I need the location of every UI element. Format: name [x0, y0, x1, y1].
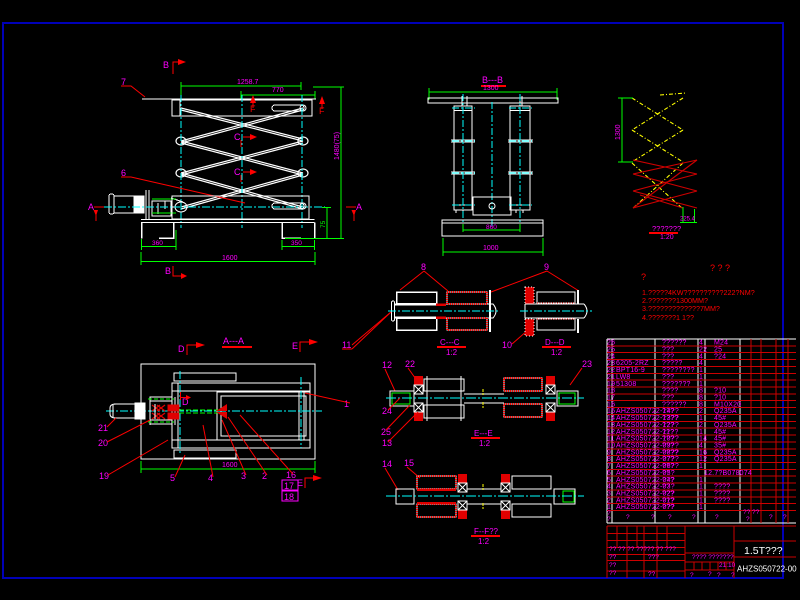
svg-text:5: 5 [170, 473, 175, 483]
svg-text:E---E: E---E [474, 429, 493, 438]
svg-text:75: 75 [320, 220, 327, 228]
svg-text:1: 1 [699, 504, 703, 511]
svg-text:360: 360 [152, 240, 163, 247]
svg-text:C: C [234, 167, 241, 177]
svg-text:??: ?? [609, 554, 617, 561]
svg-text:A: A [356, 202, 362, 212]
svg-text:18: 18 [284, 492, 294, 502]
svg-text:10: 10 [502, 340, 512, 350]
svg-text:1: 1 [699, 463, 703, 470]
svg-text:?: ? [746, 516, 750, 523]
svg-text:20: 20 [98, 438, 108, 448]
svg-text:1:20: 1:20 [660, 234, 674, 241]
svg-text:1: 1 [344, 399, 349, 409]
svg-text:????: ???? [714, 497, 730, 504]
svg-text:?? ??: ?? ?? [743, 509, 760, 516]
svg-text:1258.7: 1258.7 [237, 79, 259, 86]
svg-text:??: ?? [609, 570, 617, 577]
svg-text:51308: 51308 [616, 381, 636, 388]
svg-text:?: ? [769, 514, 773, 521]
svg-text:22: 22 [405, 359, 415, 369]
svg-text:?: ? [607, 516, 611, 523]
svg-text:1300: 1300 [483, 85, 499, 92]
svg-text:3.?????????????7MM?: 3.?????????????7MM? [642, 304, 720, 313]
svg-text:?: ? [717, 572, 721, 579]
svg-text:1000: 1000 [483, 245, 499, 252]
svg-text:?: ? [783, 514, 787, 521]
svg-text:?: ? [731, 572, 735, 579]
svg-text:225.4: 225.4 [680, 217, 696, 223]
svg-text:?24: ?24 [714, 353, 726, 360]
svg-text:?: ? [651, 514, 655, 521]
svg-text:?: ? [708, 571, 712, 578]
svg-text:???????: ??????? [652, 224, 681, 233]
svg-text:25: 25 [381, 427, 391, 437]
svg-text:1:2: 1:2 [478, 537, 490, 546]
svg-text:B: B [163, 60, 169, 70]
svg-text:D: D [178, 344, 185, 354]
svg-text:8: 8 [421, 262, 426, 272]
svg-text:???: ??? [648, 554, 659, 561]
svg-text:E: E [297, 478, 303, 488]
svg-text:1:2: 1:2 [446, 348, 458, 357]
svg-text:C---C: C---C [440, 338, 460, 347]
svg-text:1:2: 1:2 [551, 348, 563, 357]
svg-text:??: ?? [609, 562, 617, 569]
svg-text:860: 860 [486, 224, 497, 231]
svg-text:???? ???????: ???? ??????? [692, 554, 734, 561]
svg-text:1600: 1600 [222, 462, 238, 469]
svg-text:? ? ?: ? ? ? [710, 263, 730, 273]
svg-text:E: E [292, 341, 298, 351]
svg-text:AHZS050722-00: AHZS050722-00 [737, 565, 797, 574]
svg-text:1480(75): 1480(75) [334, 132, 341, 160]
svg-text:Q235A: Q235A [714, 456, 737, 463]
svg-text:A: A [88, 202, 94, 212]
svg-text:4.???????1 1??: 4.???????1 1?? [642, 313, 694, 322]
svg-text:1:2: 1:2 [479, 439, 491, 448]
svg-text:14: 14 [382, 459, 392, 469]
svg-text:??: ?? [648, 571, 656, 578]
svg-text:A---A: A---A [223, 336, 244, 346]
svg-text:B: B [165, 266, 171, 276]
svg-text:?: ? [626, 514, 630, 521]
svg-text:9: 9 [544, 262, 549, 272]
svg-text:15: 15 [404, 458, 414, 468]
svg-text:1600: 1600 [222, 255, 238, 262]
svg-text:?: ? [690, 572, 694, 579]
svg-text:?? ?? ?? ????? ?? ???: ?? ?? ?? ????? ?? ??? [609, 546, 676, 553]
svg-text:350: 350 [291, 240, 302, 247]
svg-text:12.7?B078074: 12.7?B078074 [704, 470, 752, 477]
svg-text:?: ? [641, 272, 646, 282]
svg-text:21:10: 21:10 [719, 562, 736, 569]
svg-text:?: ? [715, 514, 719, 521]
svg-text:17: 17 [284, 481, 294, 491]
svg-text:19: 19 [99, 471, 109, 481]
svg-text:23: 23 [582, 359, 592, 369]
svg-text:12: 12 [382, 360, 392, 370]
svg-text:?: ? [668, 514, 672, 521]
svg-text:?: ? [692, 514, 696, 521]
svg-text:D---D: D---D [545, 338, 565, 347]
svg-text:1.5T???: 1.5T??? [744, 545, 783, 557]
svg-text:1300: 1300 [615, 124, 622, 140]
svg-text:21: 21 [98, 423, 108, 433]
svg-text:F--F??: F--F?? [474, 527, 499, 536]
svg-text:???: ??? [662, 504, 674, 511]
svg-text:C: C [234, 132, 241, 142]
svg-text:B---B: B---B [482, 75, 503, 85]
svg-text:2: 2 [262, 471, 267, 481]
svg-text:770: 770 [272, 87, 284, 94]
